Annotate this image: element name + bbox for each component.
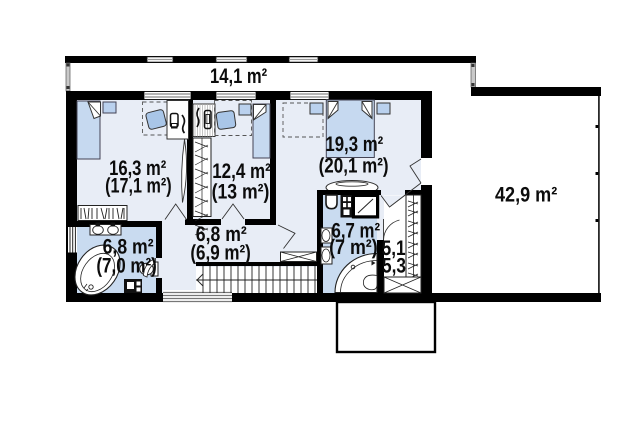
svg-text:42,9 m²: 42,9 m² (495, 183, 557, 206)
svg-text:(7,0 m²): (7,0 m²) (96, 254, 156, 277)
svg-text:14,1 m²: 14,1 m² (210, 65, 267, 88)
svg-text:(6,9 m²): (6,9 m²) (190, 241, 250, 264)
svg-text:(7 m²): (7 m²) (329, 236, 378, 259)
svg-text:(13 m²): (13 m²) (212, 181, 270, 204)
svg-text:5,3: 5,3 (382, 254, 406, 277)
svg-text:(20,1 m²): (20,1 m²) (319, 154, 389, 177)
svg-text:19,3 m²: 19,3 m² (325, 133, 383, 156)
svg-text:(17,1 m²): (17,1 m²) (105, 175, 171, 198)
